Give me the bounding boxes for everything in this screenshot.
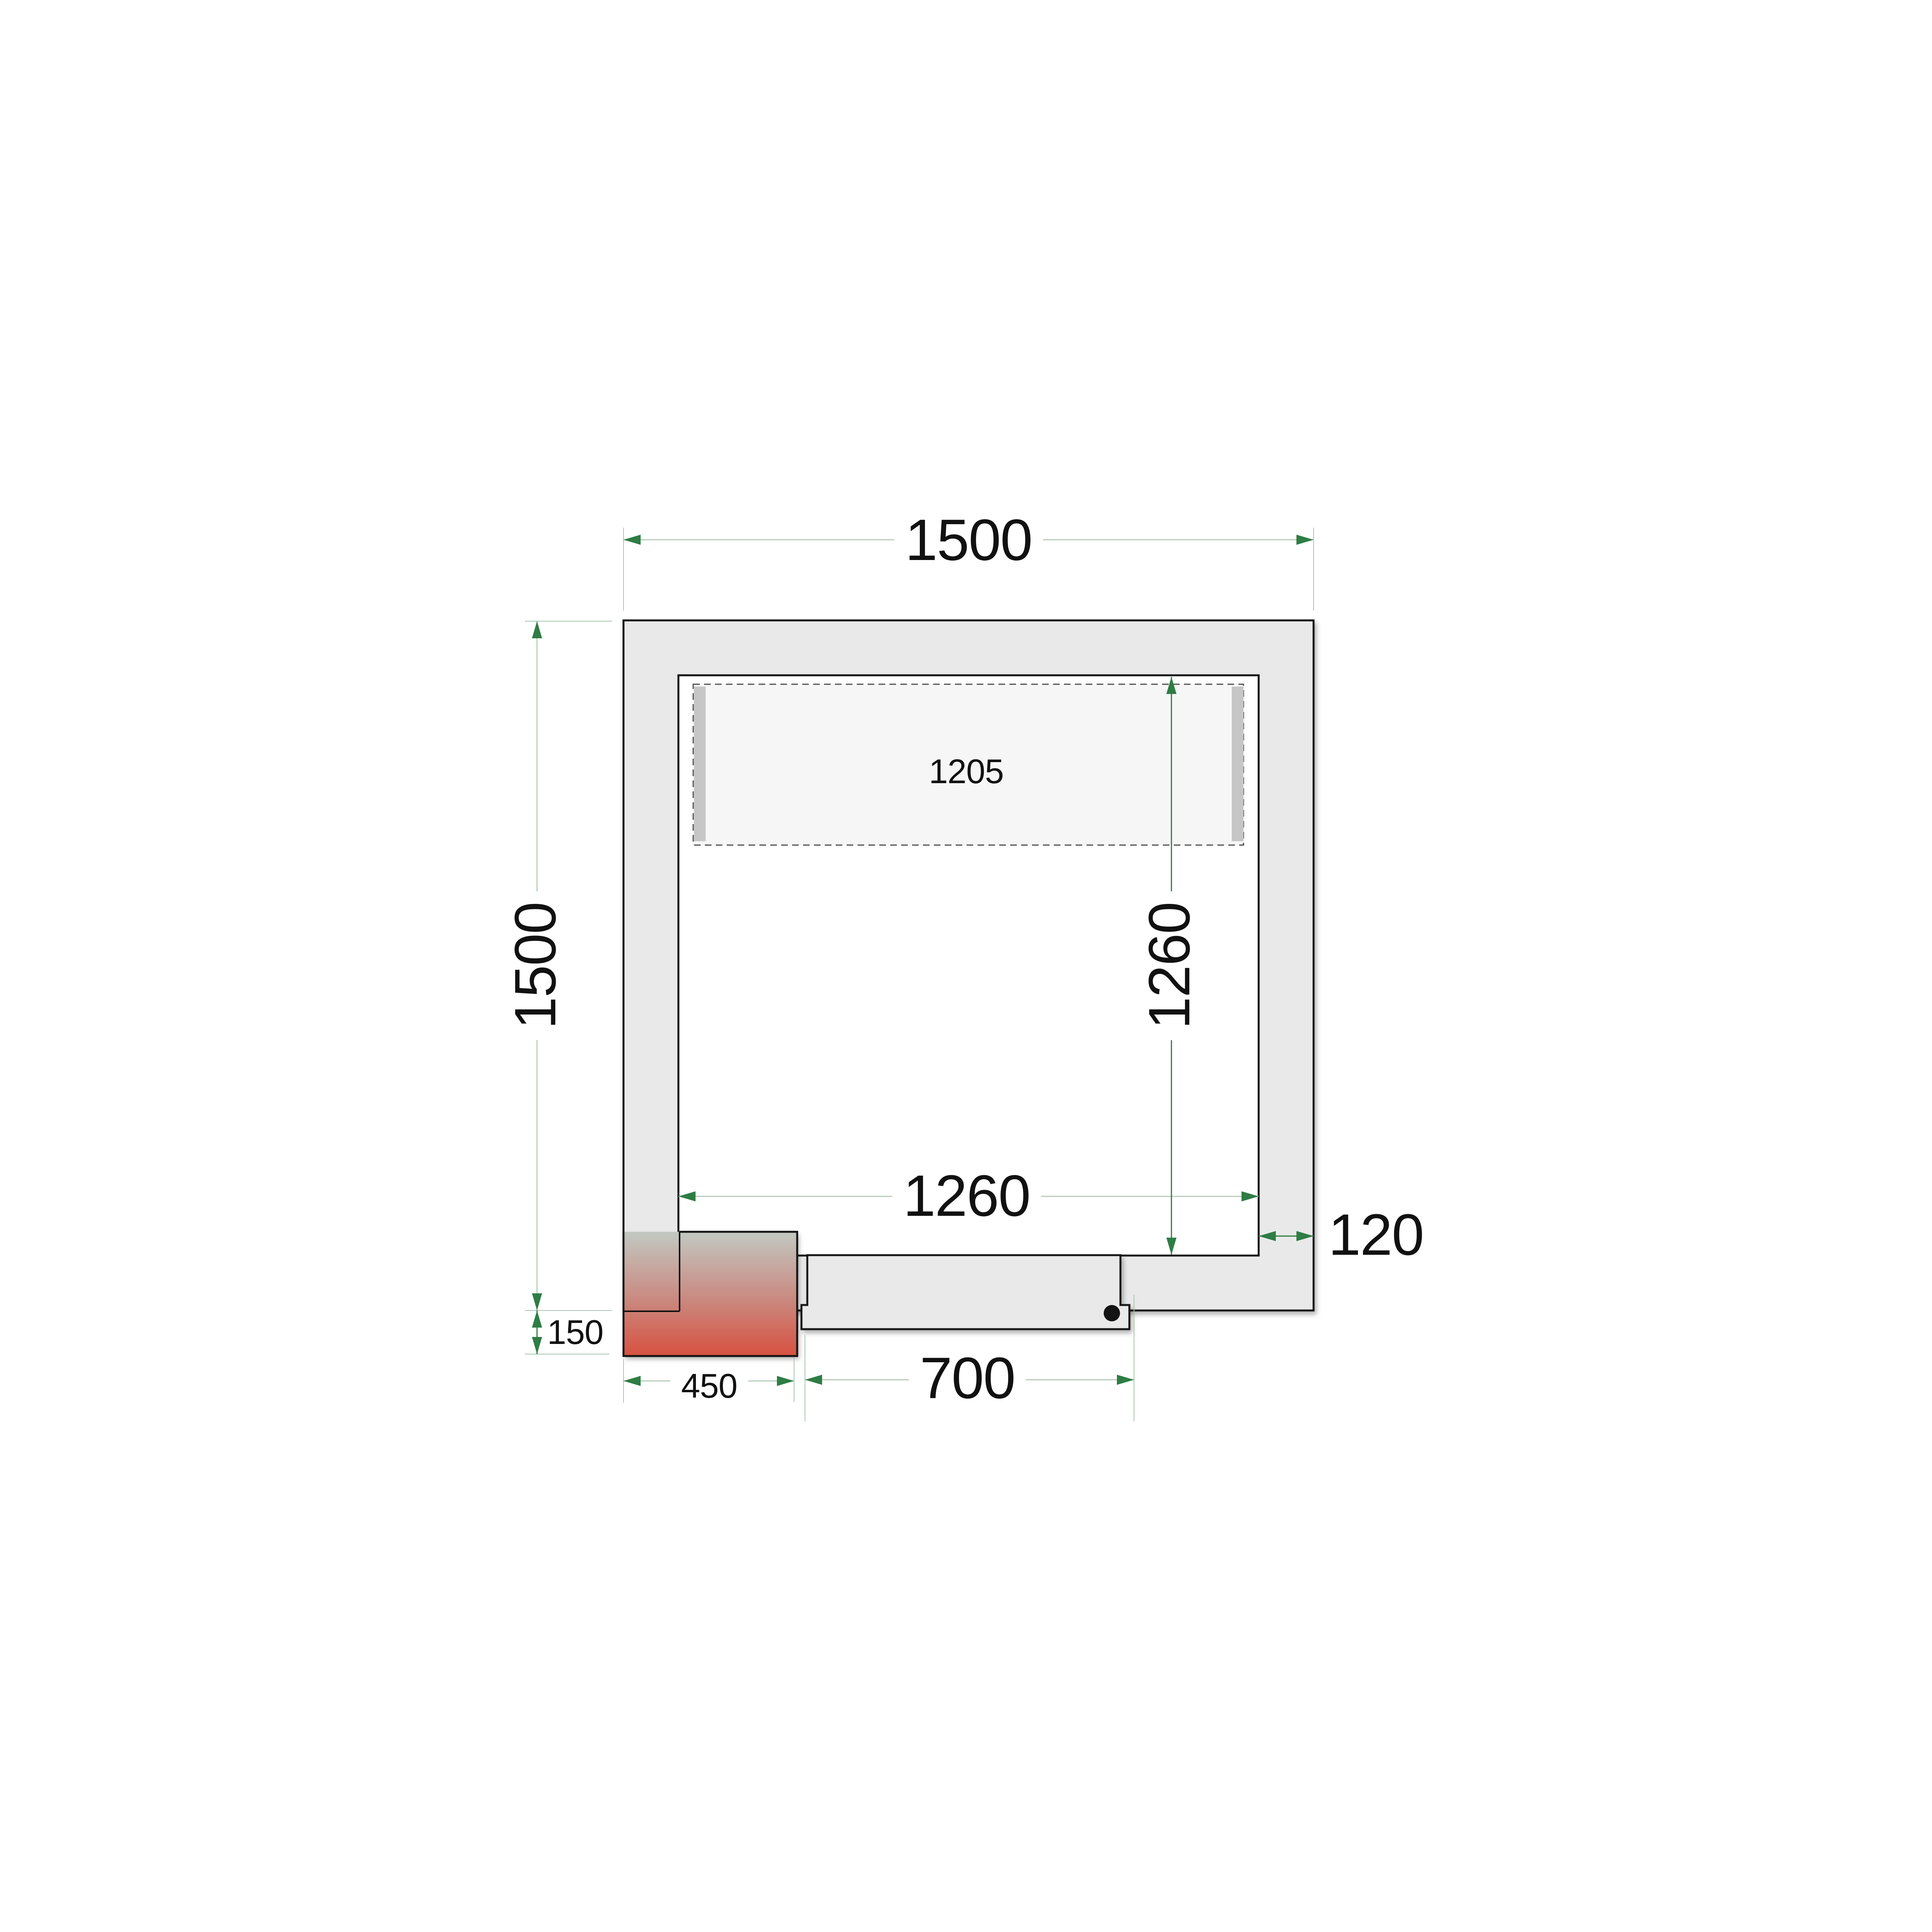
dim-label-unit-overhang: 150 [547, 1315, 603, 1349]
dim-label-door-width: 700 [909, 1349, 1026, 1407]
arrow-left-icon [623, 1376, 641, 1386]
door-handle-dot [1104, 1305, 1120, 1321]
evaporator-bar-right [1232, 687, 1243, 841]
door-leaf [801, 1255, 1129, 1329]
arrow-up-icon [532, 1310, 542, 1328]
arrow-down-icon [532, 1293, 542, 1310]
dim-label-inner-depth: 1260 [1140, 891, 1198, 1040]
arrow-right-icon [1117, 1375, 1134, 1385]
condensing-unit-body [623, 1232, 797, 1356]
dim-label-unit-width: 450 [670, 1369, 748, 1403]
dim-label-overall-depth: 1500 [506, 891, 564, 1040]
arrow-right-icon [1296, 535, 1314, 545]
arrow-left-icon [805, 1375, 822, 1385]
floorplan-drawing: 1500 1500 1205 1260 1260 120 150 450 700 [0, 0, 1932, 1932]
evaporator-bar-left [694, 687, 706, 841]
arrow-up-icon [532, 621, 542, 638]
arrow-left-icon [623, 535, 641, 545]
dim-label-overall-width: 1500 [894, 511, 1043, 569]
dim-label-evaporator-width: 1205 [929, 754, 1004, 789]
arrow-right-icon [777, 1376, 794, 1386]
dim-label-inner-width: 1260 [892, 1166, 1041, 1225]
floorplan-svg [0, 0, 1932, 1932]
dim-label-wall-thickness: 120 [1328, 1205, 1423, 1264]
condensing-unit [623, 1232, 797, 1356]
arrow-down-icon [532, 1337, 542, 1354]
